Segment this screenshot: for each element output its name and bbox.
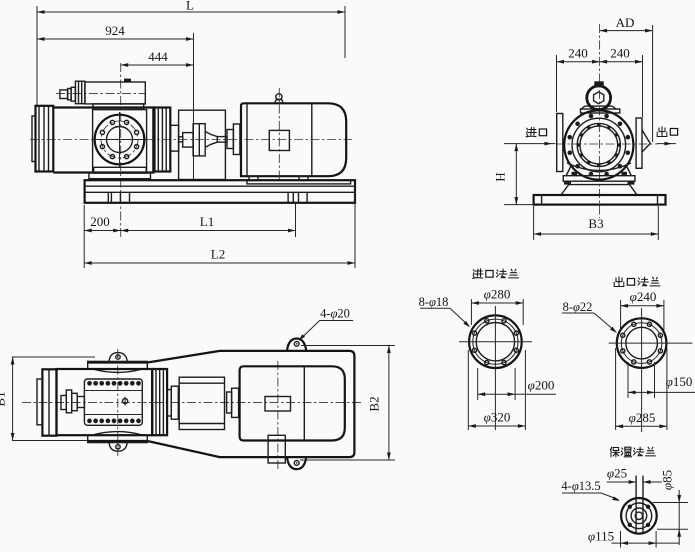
svg-text:924: 924 — [105, 23, 125, 38]
svg-text:L: L — [186, 0, 194, 13]
svg-text:L2: L2 — [211, 247, 225, 262]
svg-text:4-φ20: 4-φ20 — [320, 307, 350, 321]
svg-text:L1: L1 — [200, 214, 214, 229]
svg-text:φ200: φ200 — [528, 378, 555, 393]
svg-text:B3: B3 — [588, 216, 603, 231]
svg-text:8-φ18: 8-φ18 — [419, 295, 449, 309]
svg-text:φ25: φ25 — [607, 466, 627, 481]
svg-text:φ85: φ85 — [660, 470, 675, 490]
svg-text:φ280: φ280 — [484, 287, 511, 302]
svg-text:H: H — [493, 172, 508, 181]
svg-text:φ320: φ320 — [484, 410, 511, 425]
svg-text:444: 444 — [148, 49, 168, 64]
svg-text:240: 240 — [610, 46, 630, 61]
svg-text:φ285: φ285 — [629, 410, 656, 425]
svg-text:4-φ13.5: 4-φ13.5 — [561, 479, 600, 493]
svg-text:8-φ22: 8-φ22 — [563, 300, 593, 314]
svg-text:AD: AD — [616, 15, 635, 30]
svg-text:φ240: φ240 — [630, 289, 657, 304]
svg-text:B2: B2 — [367, 396, 382, 411]
svg-text:240: 240 — [568, 46, 588, 61]
svg-text:φ115: φ115 — [588, 529, 614, 544]
svg-text:200: 200 — [90, 214, 110, 229]
svg-text:φ150: φ150 — [666, 374, 693, 389]
svg-text:B1: B1 — [0, 391, 8, 406]
